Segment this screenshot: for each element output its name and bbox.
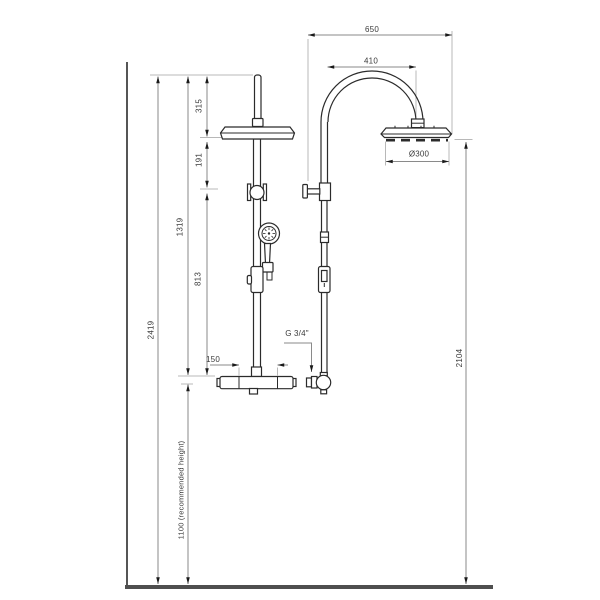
handshower-head: [259, 223, 280, 244]
dim-label-depth-overall: 650: [365, 25, 379, 34]
dim-label-top-to-mixer: 1319: [176, 217, 185, 236]
side-column-joint: [321, 232, 329, 243]
dim-label-arm-projection: 410: [364, 57, 378, 66]
arch-nut: [412, 119, 425, 128]
side-column-upper: [322, 201, 328, 233]
handshower-handle: [265, 244, 271, 264]
dim-label-mixer-height: 1100 (recommended height): [177, 440, 186, 539]
dim-label-top-to-head: 315: [195, 99, 204, 113]
side-view: [303, 71, 452, 394]
dimension-lines: [158, 35, 466, 584]
mixer-valve: [217, 377, 296, 389]
rail-collar-front: [252, 367, 262, 377]
dim-label-thread: G 3/4": [285, 329, 309, 338]
handshower-holder: [263, 263, 274, 281]
riser-collar-front: [253, 119, 264, 127]
front-view: [217, 75, 296, 394]
technical-drawing-canvas: 2419 1319 1100 (recommended height) 315 …: [0, 0, 600, 600]
dim-label-inlet-spacing: 150: [206, 355, 220, 364]
rail-slider-side: [319, 267, 331, 293]
side-column-mid: [322, 243, 328, 268]
dim-label-total-height: 2419: [147, 320, 156, 339]
dim-label-head-diameter: Ø300: [409, 150, 430, 159]
riser-pipe-front: [255, 75, 262, 121]
extension-lines: [150, 31, 473, 384]
dim-label-head-clearance: 2104: [455, 348, 464, 367]
side-column-lower: [322, 293, 328, 374]
leader-line-thread: [284, 343, 312, 372]
dim-label-head-to-diverter: 191: [195, 153, 204, 167]
diverter-knob-side: [303, 185, 320, 199]
rail-slider-front: [247, 267, 263, 293]
rail-front: [254, 139, 261, 377]
shower-head-side: [381, 126, 452, 138]
diverter-knob-front: [248, 184, 267, 201]
supply-elbow: [307, 373, 331, 394]
mixer-outlet: [250, 389, 258, 395]
shower-head-front: [221, 127, 295, 139]
technical-drawing-page: 2419 1319 1100 (recommended height) 315 …: [0, 0, 600, 600]
side-column-block: [320, 183, 331, 201]
dim-label-diverter-to-mixer: 813: [194, 272, 203, 286]
